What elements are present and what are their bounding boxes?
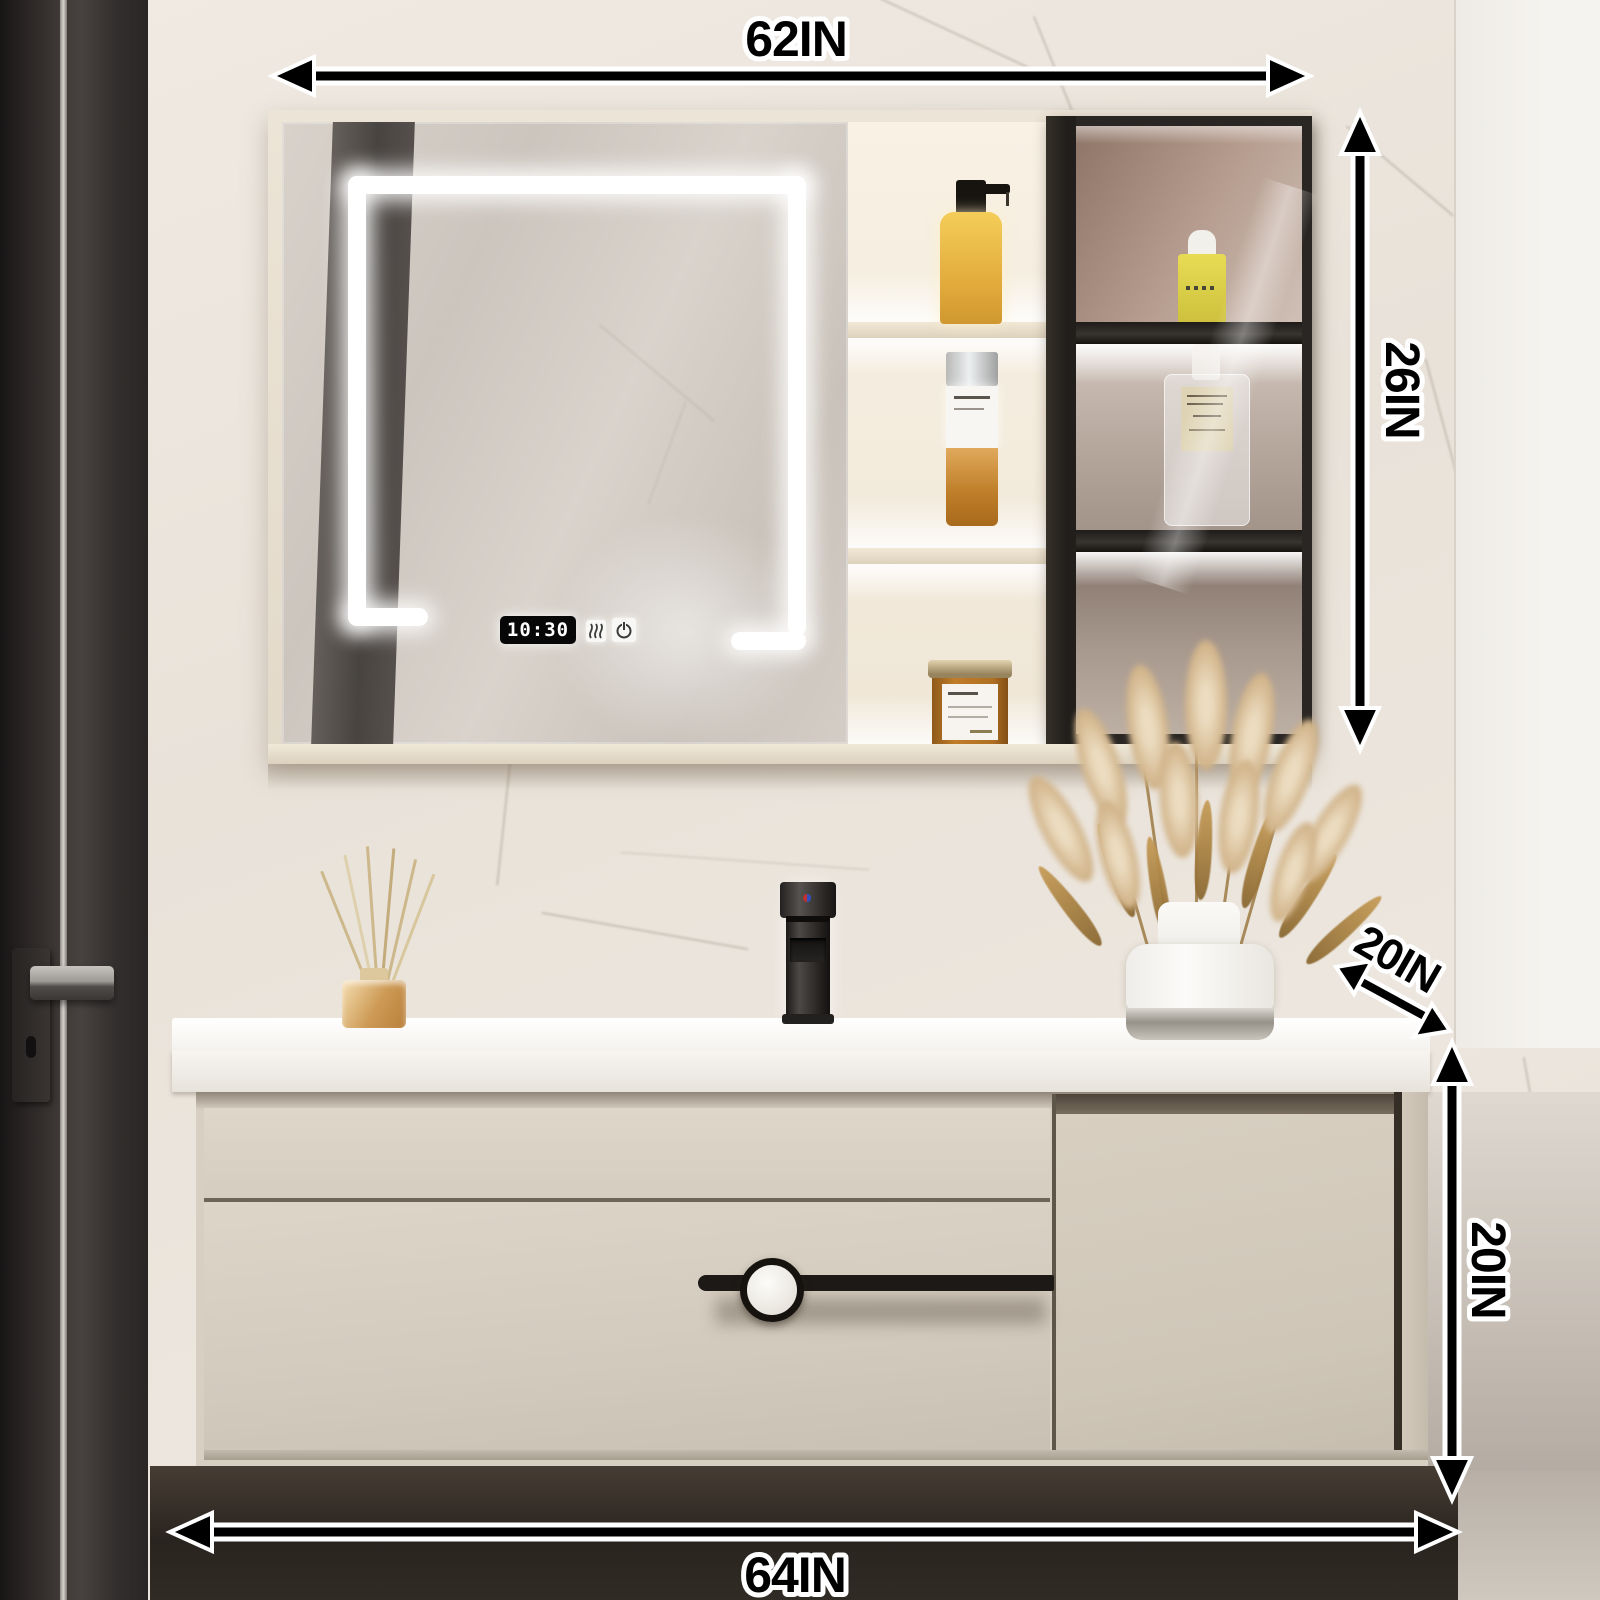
- led-strip-top: [348, 176, 806, 194]
- door-handle: [30, 966, 114, 1000]
- glass-glow: [1076, 126, 1302, 144]
- power-icon[interactable]: [612, 618, 636, 642]
- pump-bottle-nozzle: [1006, 192, 1009, 206]
- vase-chrome-band: [1126, 1008, 1274, 1040]
- room-door: [0, 0, 148, 1600]
- amber-jar-lid: [928, 660, 1012, 678]
- under-vanity-shadow: [150, 1466, 1460, 1600]
- label-line: [954, 396, 990, 399]
- bathroom-product-photo: 10:30: [0, 0, 1600, 1600]
- vanity-right-door[interactable]: [1056, 1114, 1394, 1454]
- diffuser-reed: [388, 874, 435, 991]
- right-wall-panel: [1454, 0, 1600, 1048]
- pampas-plume: [1185, 640, 1227, 770]
- faucet-band: [786, 916, 830, 922]
- faucet-temp-indicator: [803, 894, 811, 902]
- vanity-top-drawer[interactable]: [204, 1108, 1050, 1198]
- label-line: [948, 692, 978, 695]
- faucet-spout: [790, 938, 826, 962]
- door-keyhole: [26, 1036, 36, 1058]
- lotion-bottle-label: [946, 386, 998, 448]
- shelf-board: [848, 548, 1046, 564]
- led-strip-bottom-right: [731, 632, 806, 650]
- open-shelf-unit: [848, 122, 1046, 744]
- lotion-bottle-cap: [946, 352, 998, 386]
- top-width-arrow: [272, 57, 1310, 95]
- plant-leaf: [1033, 862, 1107, 951]
- pampas-plume: [1087, 797, 1149, 912]
- vase-neck: [1158, 902, 1240, 950]
- label-line: [948, 706, 992, 708]
- counter-depth-label: 20IN: [1346, 916, 1448, 1003]
- mirror-vein: [647, 401, 687, 505]
- label-line: [1186, 286, 1218, 290]
- plant-leaf: [1301, 891, 1386, 970]
- cabinet-height-arrow: [1341, 112, 1379, 750]
- vanity-gap: [1394, 1092, 1402, 1456]
- faucet-base: [782, 1014, 834, 1024]
- cabinet-height-label: 26IN: [1375, 341, 1428, 438]
- marble-vein: [868, 0, 1032, 70]
- amber-jar-label: [942, 684, 998, 740]
- marble-vein: [541, 912, 748, 950]
- shelf-underlight: [848, 564, 1046, 600]
- floor: [1458, 1470, 1600, 1600]
- marble-vein: [620, 851, 870, 870]
- soap-pump-bottle: [940, 212, 1002, 324]
- top-width-label: 62IN: [745, 11, 847, 67]
- vanity-bottom-edge: [204, 1450, 1428, 1460]
- label-line: [948, 716, 988, 718]
- amber-jar-body: [932, 678, 1008, 744]
- vase-body: [1126, 944, 1274, 1010]
- led-mirror: 10:30: [282, 122, 848, 744]
- led-strip-right: [788, 176, 806, 636]
- cabinet-bottle-cap: [1188, 230, 1216, 256]
- defogger-icon[interactable]: [586, 620, 606, 642]
- drawer-handle-knob[interactable]: [740, 1258, 804, 1322]
- diffuser-jar: [342, 980, 406, 1028]
- glass-door-cabinet: [1046, 116, 1312, 744]
- vanity-cabinet: [196, 1092, 1428, 1468]
- door-handle-notch: [1056, 1094, 1394, 1114]
- mirror-vein: [599, 324, 715, 422]
- countertop-edge: [172, 1050, 1430, 1092]
- mirror-clock: 10:30: [500, 616, 576, 644]
- vanity-bottom-drawer[interactable]: [204, 1202, 1050, 1454]
- lotion-bottle-body: [946, 448, 998, 526]
- marble-vein: [1346, 125, 1455, 217]
- led-strip-bottom-left: [348, 608, 428, 626]
- label-line: [970, 730, 992, 733]
- cabinet-stile: [1046, 116, 1076, 744]
- led-strip-left: [348, 176, 366, 626]
- shelf-board: [848, 322, 1046, 338]
- vanity-side-panel: [1402, 1092, 1428, 1460]
- door-chrome-strip: [60, 0, 67, 1600]
- label-line: [954, 408, 984, 410]
